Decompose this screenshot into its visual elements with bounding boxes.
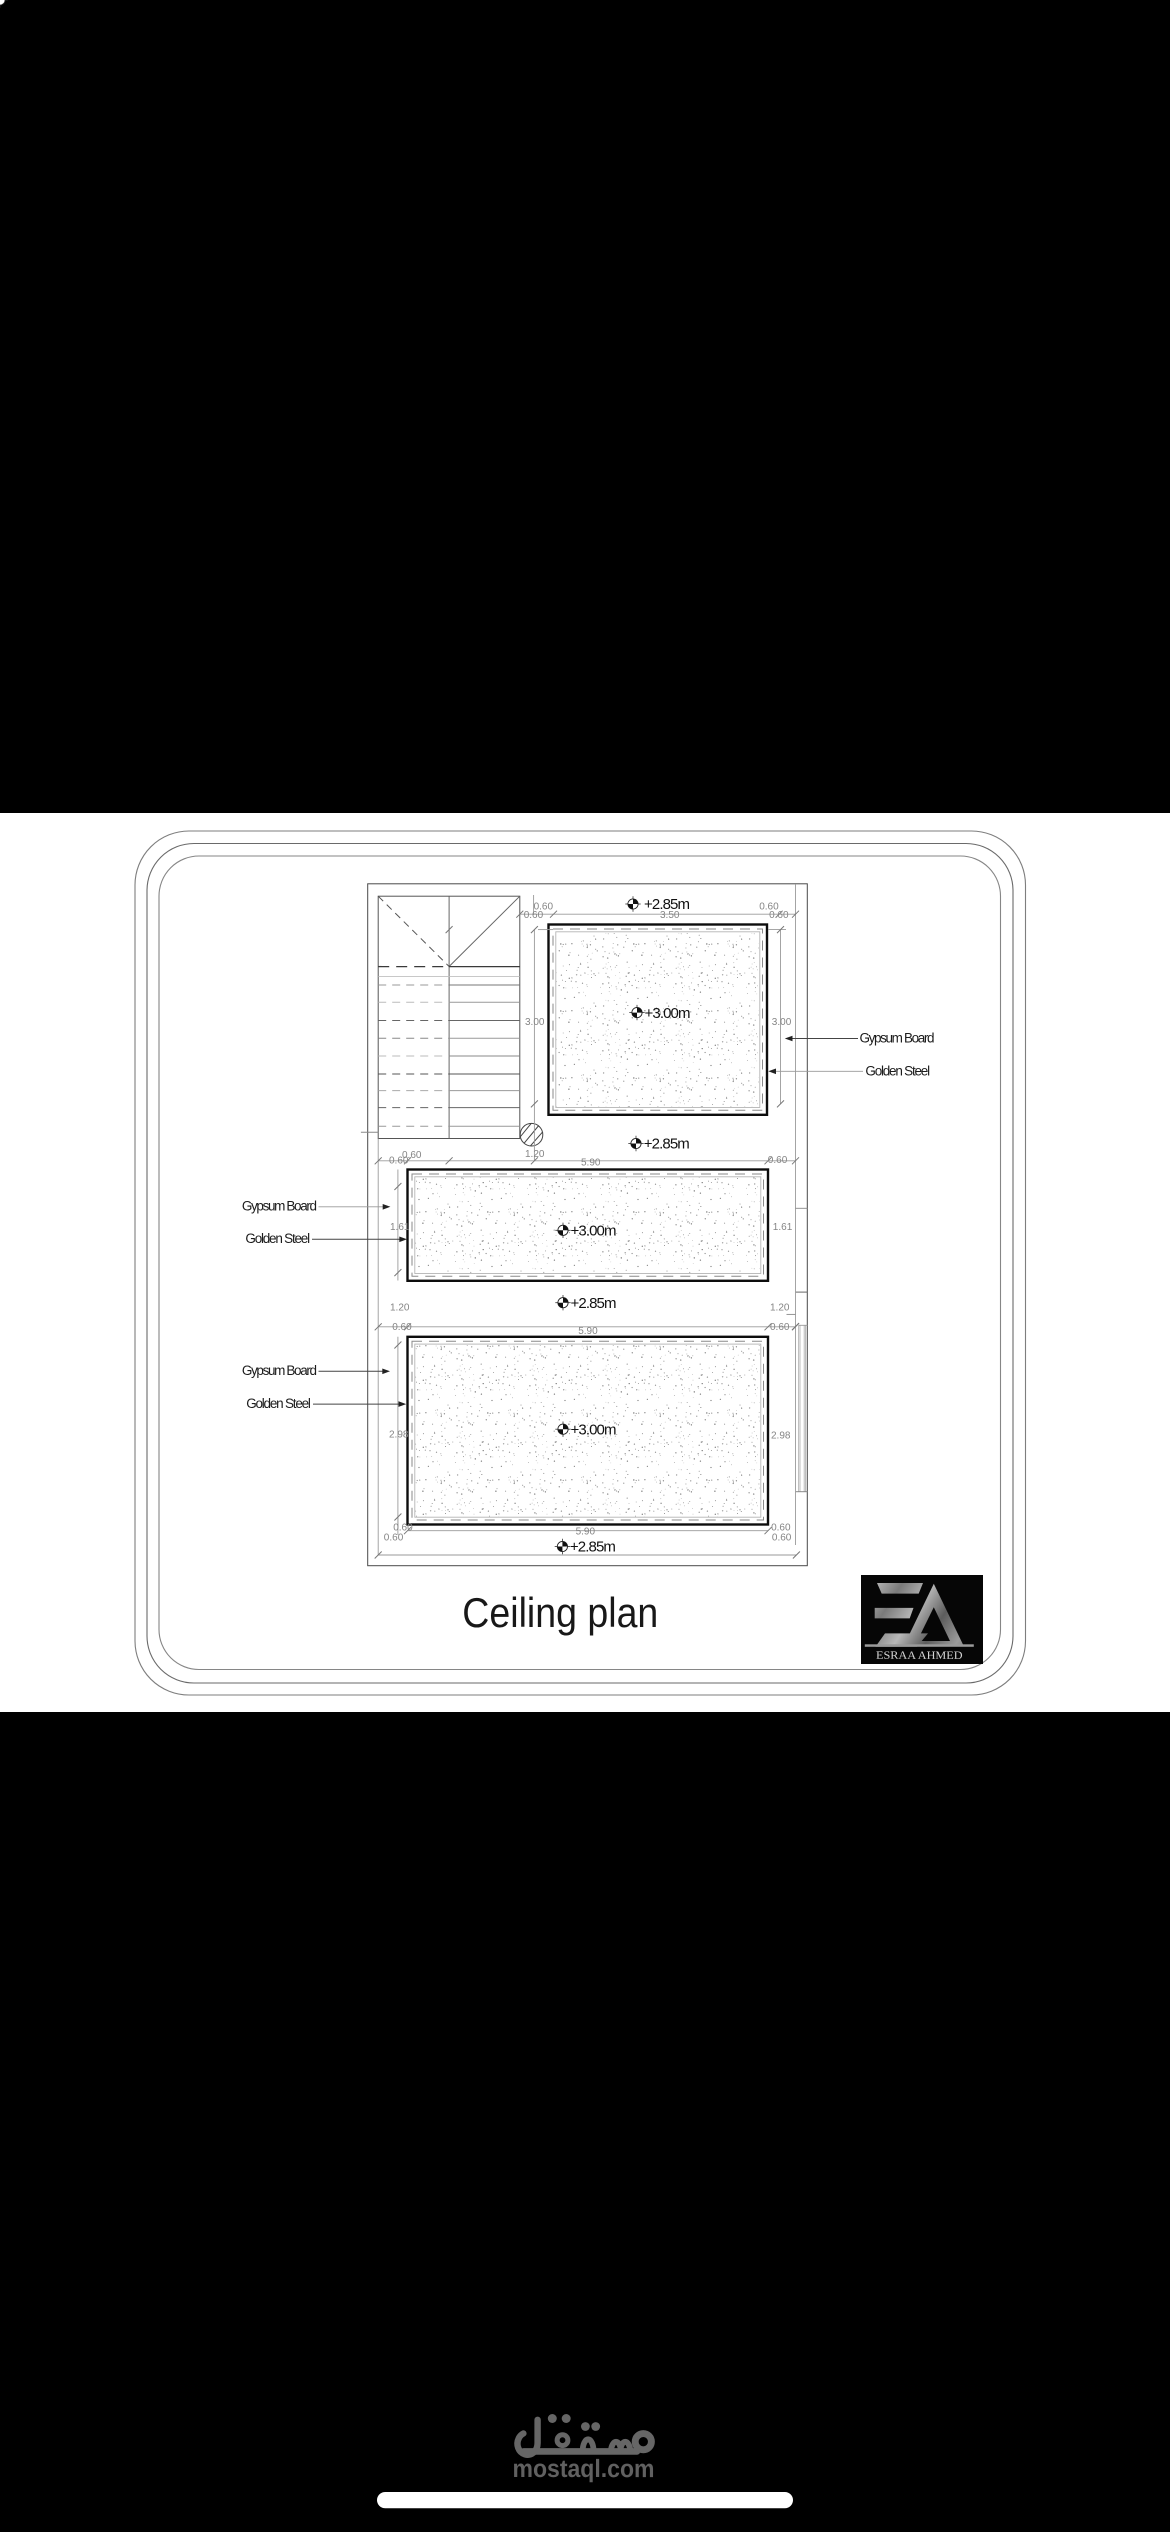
svg-text:1.20: 1.20	[770, 1303, 790, 1314]
svg-text:Gypsum Board: Gypsum Board	[242, 1363, 317, 1378]
svg-text:Golden Steel: Golden Steel	[245, 1231, 310, 1246]
svg-text:Ceiling plan: Ceiling plan	[462, 1589, 658, 1636]
svg-text:0.60: 0.60	[524, 910, 544, 921]
svg-text:+2.85m: +2.85m	[570, 1539, 616, 1556]
svg-text:ESRAA AHMED: ESRAA AHMED	[876, 1650, 963, 1662]
svg-text:5.90: 5.90	[578, 1326, 598, 1337]
svg-text:1.20: 1.20	[525, 1149, 545, 1160]
svg-text:0.60: 0.60	[392, 1322, 412, 1333]
svg-text:3.00: 3.00	[772, 1017, 792, 1028]
svg-text:Gypsum Board: Gypsum Board	[242, 1199, 317, 1214]
svg-text:1.61: 1.61	[773, 1222, 793, 1233]
svg-text:1.61: 1.61	[390, 1222, 410, 1233]
svg-text:+3.00m: +3.00m	[645, 1005, 691, 1022]
svg-text:+2.85m: +2.85m	[644, 896, 690, 913]
svg-text:+3.00m: +3.00m	[571, 1421, 617, 1438]
svg-text:Golden Steel: Golden Steel	[865, 1063, 930, 1078]
svg-text:Gypsum Board: Gypsum Board	[860, 1031, 935, 1046]
svg-text:1.20: 1.20	[390, 1303, 410, 1314]
svg-text:0.60: 0.60	[384, 1533, 404, 1544]
svg-text:Golden Steel: Golden Steel	[246, 1396, 311, 1411]
svg-text:+2.85m: +2.85m	[644, 1136, 690, 1153]
svg-text:5.90: 5.90	[581, 1157, 601, 1168]
svg-text:+3.00m: +3.00m	[571, 1223, 617, 1240]
svg-text:2.98: 2.98	[389, 1429, 409, 1440]
svg-text:+2.85m: +2.85m	[571, 1295, 617, 1312]
svg-text:0.60: 0.60	[770, 1322, 790, 1333]
svg-text:0.60: 0.60	[772, 1533, 792, 1544]
svg-text:0.60: 0.60	[768, 1155, 788, 1166]
svg-text:mostaql.com: mostaql.com	[512, 2455, 654, 2483]
svg-text:5.90: 5.90	[576, 1526, 596, 1537]
svg-text:3.00: 3.00	[525, 1017, 545, 1028]
svg-text:2.98: 2.98	[771, 1430, 791, 1441]
svg-text:0.60: 0.60	[769, 910, 789, 921]
svg-text:0.60: 0.60	[389, 1155, 409, 1166]
